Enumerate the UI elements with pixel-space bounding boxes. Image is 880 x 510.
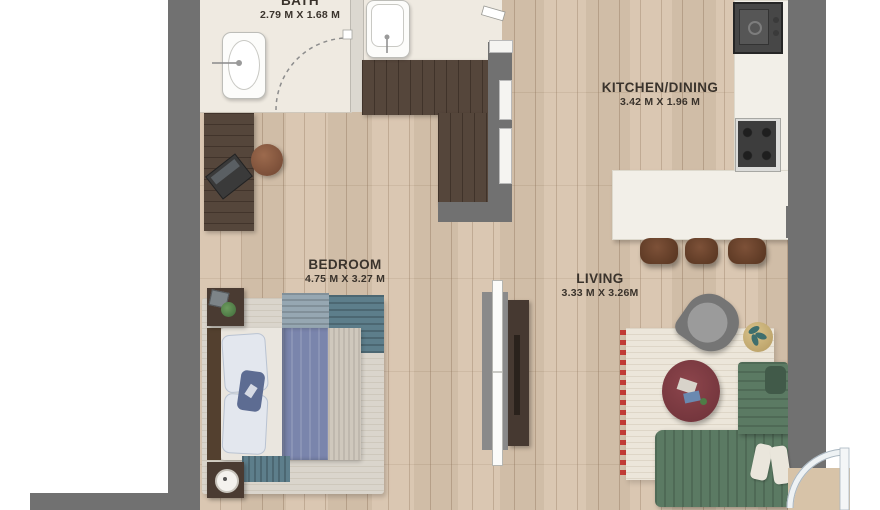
bar-stool-icon <box>728 238 766 264</box>
plant-icon <box>221 302 236 317</box>
lamp-icon <box>215 469 239 493</box>
headboard-icon <box>207 328 221 460</box>
room-dimensions: 3.42 M X 1.96 M <box>602 96 719 108</box>
bar-stool-icon <box>685 238 718 264</box>
wall-closet <box>438 202 512 222</box>
room-dimensions: 3.33 M X 3.26M <box>562 287 639 299</box>
cooktop-burners-icon <box>738 121 776 167</box>
floor-plan: BATH 2.79 M X 1.68 M KITCHEN/DINING 3.42… <box>0 0 880 510</box>
kitchen-island <box>612 170 792 240</box>
wardrobe-side-icon <box>438 113 490 205</box>
wall-bottom-left <box>30 493 170 510</box>
sliding-door-panel-icon <box>499 128 512 184</box>
faucet-knob-icon <box>773 17 779 23</box>
room-label-living: LIVING 3.33 M X 3.26M <box>562 271 639 299</box>
duvet-icon <box>282 328 328 460</box>
vanity-sink-basin-icon <box>371 4 404 47</box>
bar-stool-icon <box>640 238 678 264</box>
tv-icon <box>492 280 503 466</box>
wall-left <box>168 0 200 510</box>
cup-icon <box>700 398 707 405</box>
room-name: BATH <box>260 0 340 8</box>
room-label-bath: BATH 2.79 M X 1.68 M <box>260 0 340 21</box>
teal-throw-icon <box>242 456 290 482</box>
wall-step <box>786 206 795 238</box>
wardrobe-top-icon <box>362 60 490 115</box>
sliding-door-panel-icon <box>499 80 512 120</box>
room-name: BEDROOM <box>305 257 385 272</box>
foot-throw-icon <box>328 328 361 460</box>
room-name: LIVING <box>562 271 639 286</box>
media-console-icon <box>508 300 529 446</box>
sofa-armrest-icon <box>765 366 786 394</box>
desk-stool-icon <box>251 144 283 176</box>
room-label-kitchen-dining: KITCHEN/DINING 3.42 M X 1.96 M <box>602 80 719 108</box>
room-label-bedroom: BEDROOM 4.75 M X 3.27 M <box>305 257 385 285</box>
kitchen-sink-basin-icon <box>739 9 769 45</box>
faucet-knob-icon <box>773 30 779 36</box>
door-jamb <box>489 40 513 53</box>
room-dimensions: 2.79 M X 1.68 M <box>260 9 340 21</box>
room-dimensions: 4.75 M X 3.27 M <box>305 273 385 285</box>
room-name: KITCHEN/DINING <box>602 80 719 95</box>
bathroom-sink-basin-icon <box>228 40 260 90</box>
